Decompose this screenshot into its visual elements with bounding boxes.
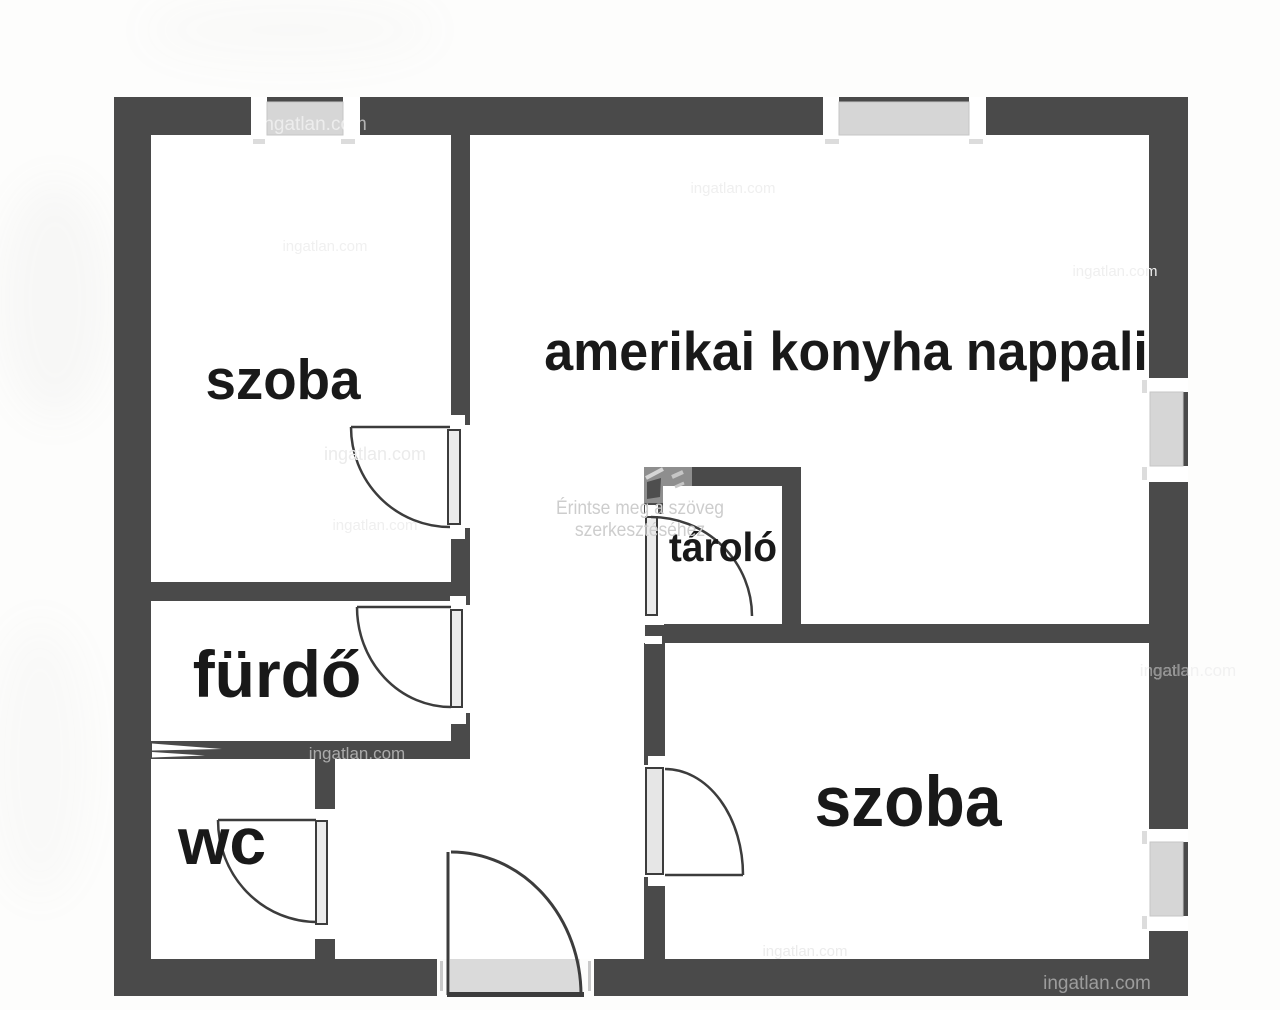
svg-text:ingatlan.com: ingatlan.com [282,238,367,255]
svg-text:ingatlan.com: ingatlan.com [690,180,775,197]
svg-text:ingatlan.com: ingatlan.com [324,444,426,464]
svg-text:ingatlan.com: ingatlan.com [1072,263,1157,280]
svg-text:ingatlan.com: ingatlan.com [1043,973,1151,994]
svg-text:wc: wc [177,804,266,878]
svg-text:ingatlan.com: ingatlan.com [259,114,367,135]
svg-text:ingatlan.com: ingatlan.com [309,744,405,763]
svg-text:szoba: szoba [205,347,361,411]
svg-text:ingatlan.com: ingatlan.com [762,943,847,960]
svg-text:szerkesztéséhez: szerkesztéséhez [575,518,705,540]
svg-text:ingatlan.com: ingatlan.com [332,517,417,534]
svg-text:szoba: szoba [814,762,1002,842]
svg-text:amerikai konyha nappali: amerikai konyha nappali [544,322,1148,383]
svg-text:Érintse meg a szöveg: Érintse meg a szöveg [556,496,724,518]
svg-text:fürdő: fürdő [193,637,362,711]
